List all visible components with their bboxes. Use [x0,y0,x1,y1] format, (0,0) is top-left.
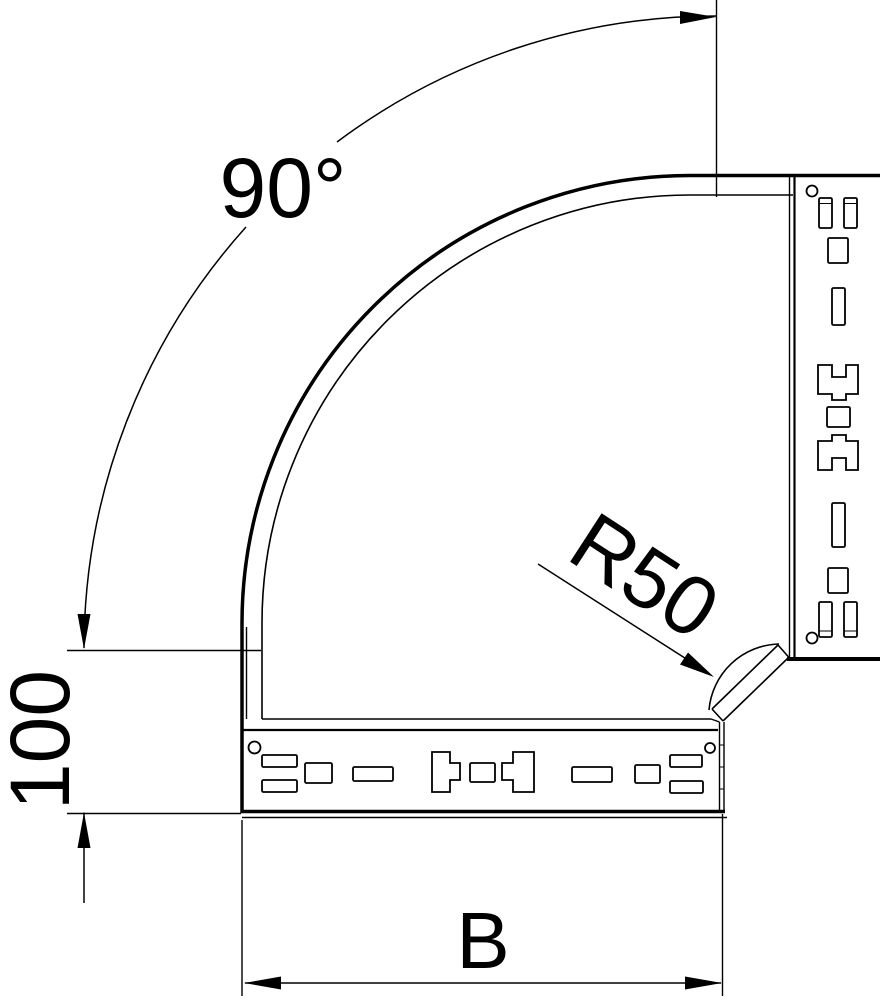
right-rail-perforations [807,186,859,644]
slot-hole [670,781,703,793]
arrowhead [244,977,281,990]
slot-hole [844,602,857,637]
height-label: 100 [0,670,87,810]
chamfer-band [712,645,789,721]
puzzle-hole [432,752,460,792]
arrowhead [680,11,716,24]
slot-hole [832,503,845,547]
angle-label: 90° [219,141,346,235]
square-hole [827,407,850,427]
slot-hole [262,780,297,792]
bottom-rail-end-fold [711,719,724,811]
bottom-rail [242,719,724,811]
inner-wall-arc [262,195,793,719]
arrowhead [680,653,714,678]
slot-hole [819,602,832,637]
puzzle-hole [818,435,858,470]
corner-chamfer [709,644,789,721]
mounting-hole [807,186,818,197]
puzzle-hole [502,752,534,792]
tray-body-outline [242,176,880,818]
puzzle-hole [818,365,858,400]
slot-hole [262,755,297,767]
right-rail [790,177,859,658]
slot-hole [670,755,702,767]
cable-tray-bend-drawing: 90° 100 R50 B [0,0,880,1000]
slot-hole [844,198,857,228]
mounting-hole [705,743,715,753]
arrowhead [78,614,91,649]
mounting-hole [807,633,818,644]
arrowhead [78,813,91,849]
slot-hole [819,198,832,228]
dimension-radius: R50 [538,494,735,677]
square-hole [828,238,848,263]
technical-drawing-page: 90° 100 R50 B [0,0,880,1000]
dimension-height: 100 [0,651,261,904]
square-hole [305,763,332,783]
outer-edge-arc [242,176,880,812]
square-hole [470,763,495,782]
square-hole [828,568,848,593]
bottom-rail-perforations [249,742,716,794]
square-hole [635,765,660,783]
arrowhead [685,977,722,990]
slot-hole [353,767,393,781]
slot-hole [832,288,845,325]
slot-hole [572,767,612,782]
width-label: B [456,896,509,985]
height-extension-lines [67,651,261,814]
dimension-width: B [242,814,723,996]
mounting-hole [249,742,261,754]
